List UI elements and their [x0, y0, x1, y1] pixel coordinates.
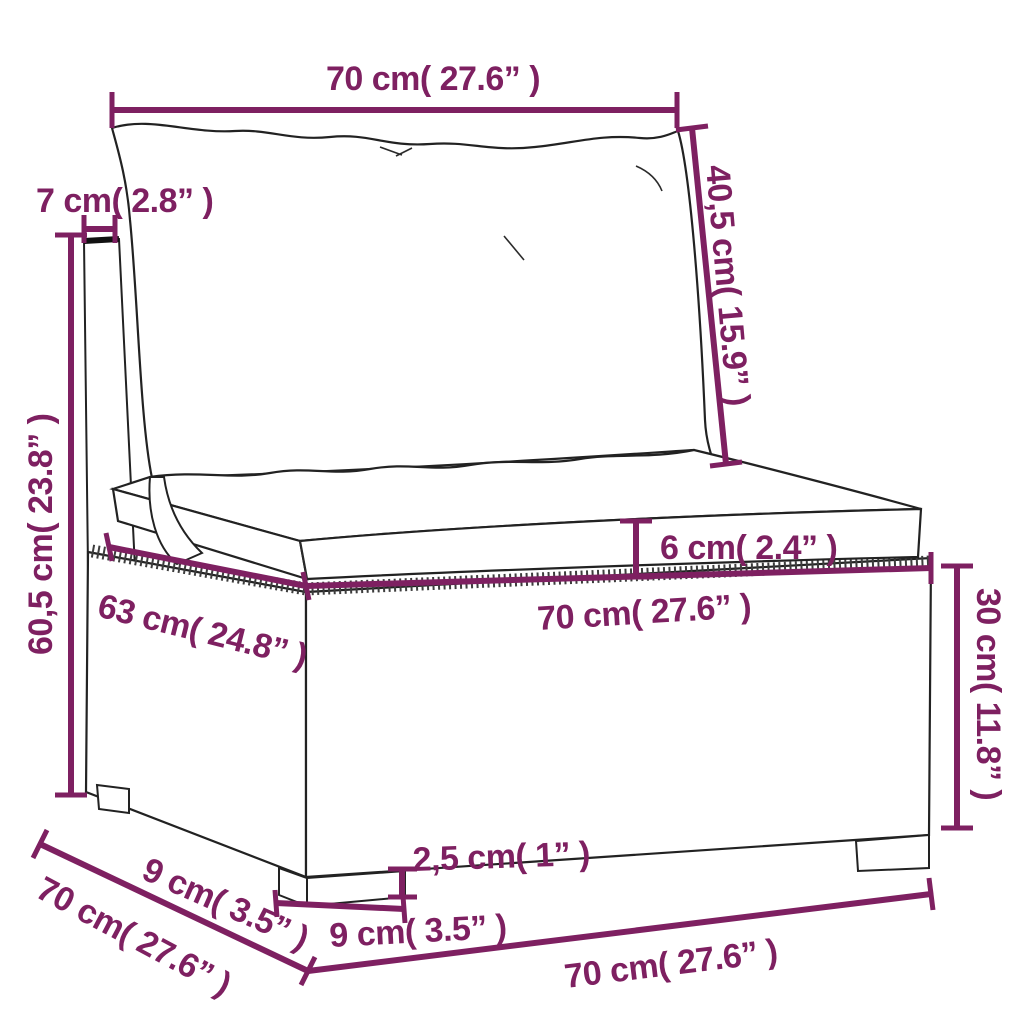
leg-right — [856, 835, 929, 871]
back-cushion — [112, 124, 717, 478]
leg-back-left — [97, 785, 129, 813]
dim-total-height: 60,5 cm( 23.8” ) — [22, 235, 87, 795]
dim-base-height-label: 30 cm( 11.8” ) — [969, 588, 1007, 800]
dim-back-frame-depth-label: 7 cm( 2.8” ) — [36, 182, 213, 220]
dimension-diagram: 70 cm( 27.6” ) 7 cm( 2.8” ) 60,5 cm( 23.… — [0, 0, 1024, 1024]
sofa-diagram-canvas: 70 cm( 27.6” ) 7 cm( 2.8” ) 60,5 cm( 23.… — [0, 0, 1024, 1024]
dim-base-height: 30 cm( 11.8” ) — [941, 566, 1007, 828]
dim-total-height-label: 60,5 cm( 23.8” ) — [22, 414, 60, 655]
dim-leg-height-label: 2,5 cm( 1” ) — [412, 835, 591, 879]
dim-leg-height: 2,5 cm( 1” ) — [388, 835, 590, 897]
dim-seat-cushion-thickness-label: 6 cm( 2.4” ) — [660, 529, 837, 567]
dim-back-width: 70 cm( 27.6” ) — [112, 60, 677, 128]
leg-front-corner-front — [307, 871, 405, 906]
dim-front-width-label: 70 cm( 27.6” ) — [562, 932, 779, 996]
dim-back-width-label: 70 cm( 27.6” ) — [326, 60, 540, 98]
